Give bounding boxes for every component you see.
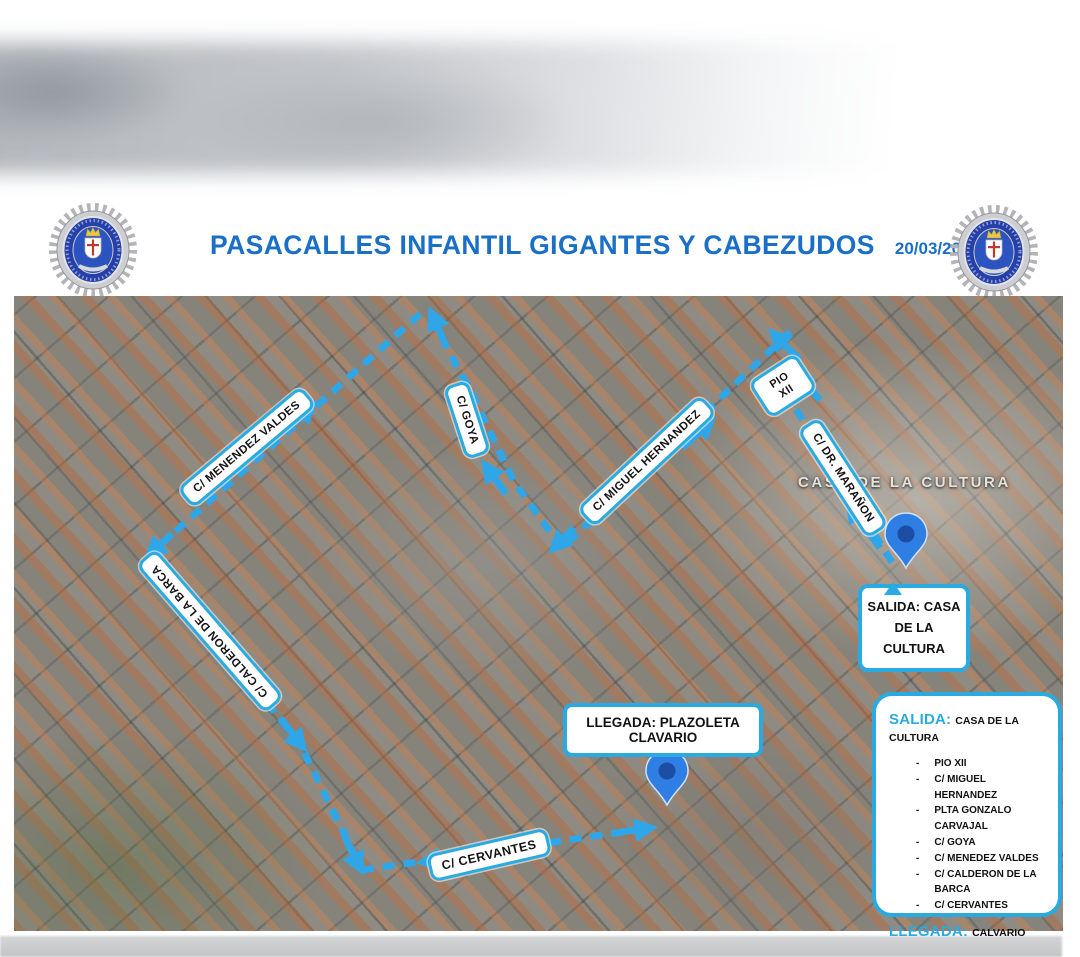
police-badge-right-icon [948,204,1040,300]
legend-route-item-text: PIO XII [934,756,1050,772]
route-segment-menendez-valdes [150,314,420,554]
legend-route-item: PLTA GONZALO CARVAJAL [889,803,1050,835]
top-blur-artifact [0,42,940,174]
legend-llegada-row: LLEGADA:CALVARIO [889,923,1050,940]
page-title: PASACALLES INFANTIL GIGANTES Y CABEZUDOS [210,230,875,261]
llegada-map-pin [646,750,688,805]
police-badge-left-icon [47,202,139,298]
legend-route-item-text: PLTA GONZALO CARVAJAL [934,803,1050,835]
legend-route-list: PIO XII C/ MIGUEL HERNANDEZ PLTA GONZALO… [889,756,1050,914]
salida-callout: SALIDA: CASA DE LA CULTURA [858,584,970,672]
legend-route-item: C/ CERVANTES [889,898,1050,914]
legend-route-item-text: C/ MIGUEL HERNANDEZ [934,772,1050,804]
legend-route-item: C/ MIGUEL HERNANDEZ [889,772,1050,804]
title-row: PASACALLES INFANTIL GIGANTES Y CABEZUDOS… [140,230,1050,261]
route-segment-goya [432,320,562,548]
route-arrow [344,836,360,868]
legend-salida-label: SALIDA: [889,711,951,728]
legend-route-item-text: C/ GOYA [934,835,1050,851]
llegada-callout: LLEGADA: PLAZOLETA CLAVARIO [563,703,763,757]
legend-route-item: PIO XII [889,756,1050,772]
legend-llegada-value: CALVARIO [972,927,1025,939]
legend-salida-row: SALIDA:CASA DE LA CULTURA [889,711,1050,745]
route-arrow [620,828,650,832]
legend-route-item: C/ MENEDEZ VALDES [889,851,1050,867]
legend-route-item: C/ GOYA [889,835,1050,851]
document-page: PASACALLES INFANTIL GIGANTES Y CABEZUDOS… [0,0,1080,957]
legend-llegada-label: LLEGADA: [889,923,968,940]
legend-route-item-text: C/ MENEDEZ VALDES [934,851,1050,867]
legend-route-item-text: C/ CERVANTES [934,898,1050,914]
legend-route-item: C/ CALDERON DE LA BARCA [889,867,1050,899]
route-arrow [280,718,302,746]
route-legend: SALIDA:CASA DE LA CULTURA PIO XII C/ MIG… [872,692,1062,917]
document-header: PASACALLES INFANTIL GIGANTES Y CABEZUDOS… [0,196,1080,296]
route-arrow [486,466,506,494]
legend-route-item-text: C/ CALDERON DE LA BARCA [934,867,1050,899]
